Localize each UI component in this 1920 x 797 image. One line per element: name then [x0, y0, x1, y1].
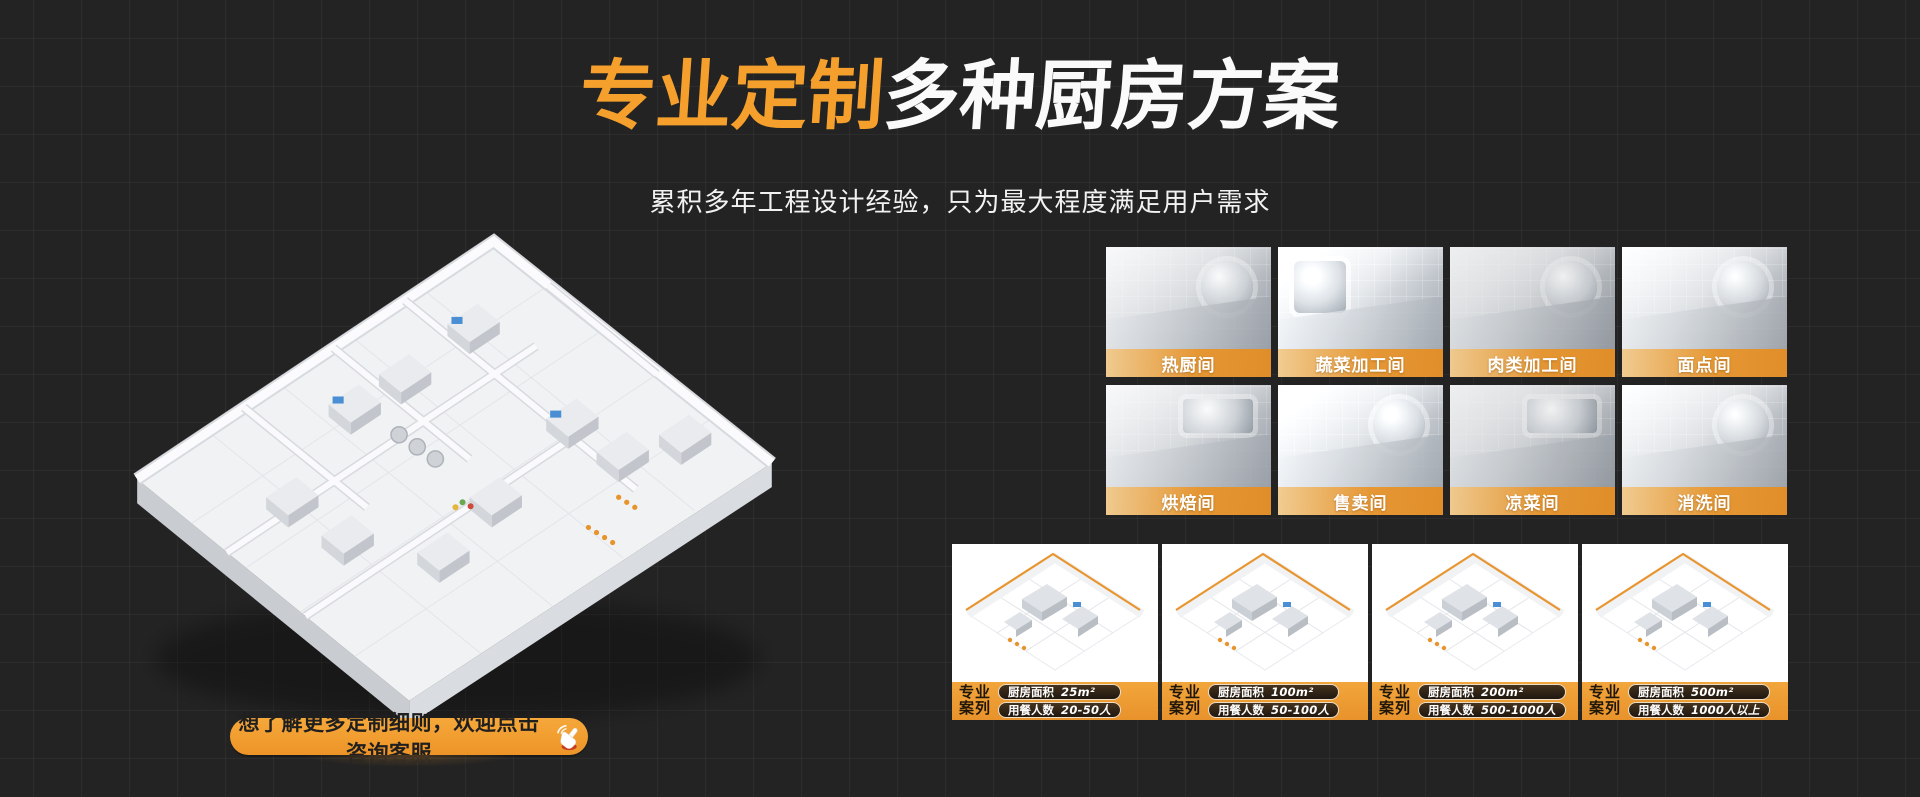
isometric-room-render: [952, 544, 1158, 682]
case-badge: 专业 案列: [1589, 685, 1621, 717]
case-badge: 专业 案列: [959, 685, 991, 717]
case-info-band: 专业 案列 厨房面积 500m² 用餐人数 1000人以上: [1582, 682, 1788, 720]
diners-stat: 用餐人数 50-100人: [1208, 702, 1339, 718]
title-highlight: 专业定制: [577, 51, 887, 140]
room-label: 烘焙间: [1106, 487, 1271, 515]
kitchen-rooms-gallery: 热厨间 蔬菜加工间 肉类加工间 面点间 烘焙间 售卖间 凉菜间 消洗间: [1106, 247, 1788, 515]
room-label: 热厨间: [1106, 349, 1271, 377]
diners-stat: 用餐人数 1000人以上: [1628, 702, 1770, 718]
case-card-200m2: 专业 案列 厨房面积 200m² 用餐人数 500-1000人: [1372, 544, 1578, 720]
case-cards-row: 专业 案列 厨房面积 25m² 用餐人数 20-50人: [952, 544, 1788, 720]
isometric-room-render: [1162, 544, 1368, 682]
room-tile-cold-dishes: 凉菜间: [1450, 385, 1615, 515]
room-label: 面点间: [1622, 349, 1787, 377]
kitchen-area-stat: 厨房面积 200m²: [1418, 684, 1566, 700]
case-render: [1162, 544, 1368, 682]
page-title: 专业定制多种厨房方案: [0, 54, 1920, 138]
room-tile-hot-kitchen: 热厨间: [1106, 247, 1271, 377]
cta-label: 想了解更多定制细则，欢迎点击咨询客服: [236, 707, 542, 767]
case-card-500m2: 专业 案列 厨房面积 500m² 用餐人数 1000人以上: [1582, 544, 1788, 720]
room-tile-dishwashing: 消洗间: [1622, 385, 1787, 515]
kitchen-solutions-banner: 专业定制多种厨房方案 累积多年工程设计经验，只为最大程度满足用户需求: [0, 0, 1920, 797]
room-tile-pastry: 面点间: [1622, 247, 1787, 377]
case-badge: 专业 案列: [1379, 685, 1411, 717]
case-render: [952, 544, 1158, 682]
room-tile-bakery: 烘焙间: [1106, 385, 1271, 515]
diners-stat: 用餐人数 500-1000人: [1418, 702, 1566, 718]
room-label: 蔬菜加工间: [1278, 349, 1443, 377]
room-tile-sales: 售卖间: [1278, 385, 1443, 515]
consult-cta-button[interactable]: 想了解更多定制细则，欢迎点击咨询客服: [230, 718, 588, 755]
case-render: [1372, 544, 1578, 682]
room-tile-vegetable-processing: 蔬菜加工间: [1278, 247, 1443, 377]
kitchen-area-stat: 厨房面积 100m²: [1208, 684, 1339, 700]
kitchen-area-stat: 厨房面积 500m²: [1628, 684, 1770, 700]
room-label: 凉菜间: [1450, 487, 1615, 515]
kitchen-area-stat: 厨房面积 25m²: [998, 684, 1121, 700]
case-badge: 专业 案列: [1169, 685, 1201, 717]
isometric-room-render: [1582, 544, 1788, 682]
isometric-room-render: [1372, 544, 1578, 682]
room-label: 肉类加工间: [1450, 349, 1615, 377]
case-info-band: 专业 案列 厨房面积 25m² 用餐人数 20-50人: [952, 682, 1158, 720]
case-card-25m2: 专业 案列 厨房面积 25m² 用餐人数 20-50人: [952, 544, 1158, 720]
case-card-100m2: 专业 案列 厨房面积 100m² 用餐人数 50-100人: [1162, 544, 1368, 720]
kitchen-floorplan-illustration: [115, 193, 800, 741]
click-hand-icon: [552, 722, 582, 752]
room-label: 消洗间: [1622, 487, 1787, 515]
case-render: [1582, 544, 1788, 682]
isometric-kitchen-floorplan: [115, 193, 800, 741]
diners-stat: 用餐人数 20-50人: [998, 702, 1121, 718]
room-label: 售卖间: [1278, 487, 1443, 515]
title-rest: 多种厨房方案: [881, 51, 1343, 140]
room-tile-meat-processing: 肉类加工间: [1450, 247, 1615, 377]
case-info-band: 专业 案列 厨房面积 100m² 用餐人数 50-100人: [1162, 682, 1368, 720]
case-info-band: 专业 案列 厨房面积 200m² 用餐人数 500-1000人: [1372, 682, 1578, 720]
